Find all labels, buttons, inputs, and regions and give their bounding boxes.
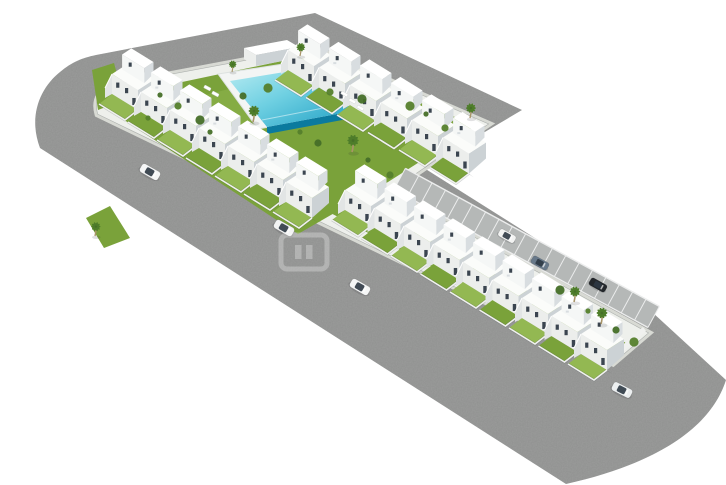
tree-shadow bbox=[92, 236, 101, 239]
window bbox=[506, 294, 509, 299]
window bbox=[125, 88, 128, 93]
palm-crown bbox=[232, 63, 234, 65]
window bbox=[292, 59, 295, 64]
shrub bbox=[145, 115, 150, 120]
window bbox=[556, 325, 559, 330]
palm-crown bbox=[95, 226, 97, 228]
shrub bbox=[357, 94, 366, 103]
window bbox=[416, 129, 419, 134]
roof-ac-unit bbox=[213, 123, 216, 125]
window bbox=[261, 173, 264, 178]
window bbox=[379, 217, 382, 222]
window bbox=[349, 199, 352, 204]
window bbox=[116, 83, 119, 88]
window bbox=[565, 330, 568, 335]
upper-window bbox=[216, 117, 219, 121]
shrub bbox=[207, 129, 212, 134]
palm-crown bbox=[300, 46, 302, 48]
window bbox=[232, 155, 235, 160]
door bbox=[432, 144, 435, 151]
window bbox=[358, 204, 361, 209]
window bbox=[497, 289, 500, 294]
scene-root bbox=[35, 13, 726, 484]
roof-ac-unit bbox=[389, 203, 392, 205]
roof-ac-unit bbox=[566, 311, 569, 313]
roof-ac-unit bbox=[271, 159, 274, 161]
upper-window bbox=[362, 179, 365, 183]
upper-window bbox=[568, 305, 571, 309]
watermark-bar bbox=[306, 245, 313, 259]
shrub bbox=[297, 129, 302, 134]
shrub bbox=[239, 92, 246, 99]
window bbox=[535, 312, 538, 317]
tree-shadow bbox=[348, 151, 359, 155]
upper-window bbox=[129, 63, 132, 67]
upper-window bbox=[305, 39, 308, 43]
shrub bbox=[585, 308, 590, 313]
shrub bbox=[441, 124, 448, 131]
window bbox=[354, 94, 357, 99]
window bbox=[408, 235, 411, 240]
window bbox=[270, 178, 273, 183]
shrub bbox=[314, 139, 321, 146]
window bbox=[301, 64, 304, 69]
shrub bbox=[423, 111, 428, 116]
window bbox=[299, 196, 302, 201]
window bbox=[323, 76, 326, 81]
tree-shadow bbox=[571, 302, 581, 306]
palm-crown bbox=[470, 107, 472, 109]
upper-window bbox=[480, 251, 483, 255]
palm-crown bbox=[601, 312, 604, 315]
upper-window bbox=[367, 74, 370, 78]
upper-window bbox=[187, 99, 190, 103]
upper-window bbox=[245, 135, 248, 139]
tree-shadow bbox=[250, 122, 260, 126]
window bbox=[332, 82, 335, 87]
upper-window bbox=[460, 126, 463, 130]
window bbox=[394, 117, 397, 122]
door bbox=[308, 74, 311, 81]
window bbox=[447, 146, 450, 151]
shrub bbox=[195, 115, 204, 124]
upper-window bbox=[336, 56, 339, 60]
roof-ac-unit bbox=[507, 275, 510, 277]
tree-shadow bbox=[230, 72, 237, 75]
door bbox=[370, 109, 373, 116]
upper-window bbox=[421, 215, 424, 219]
upper-window bbox=[158, 81, 161, 85]
window bbox=[183, 124, 186, 129]
window bbox=[241, 160, 244, 165]
tree-shadow bbox=[297, 56, 305, 59]
shrub bbox=[555, 285, 564, 294]
window bbox=[388, 222, 391, 227]
shrub bbox=[386, 171, 393, 178]
shrub bbox=[612, 326, 619, 333]
window bbox=[425, 134, 428, 139]
door bbox=[601, 358, 604, 365]
window bbox=[290, 191, 293, 196]
upper-window bbox=[450, 233, 453, 237]
upper-window bbox=[391, 197, 394, 201]
shrub bbox=[405, 101, 414, 110]
door bbox=[463, 161, 466, 168]
roof-ac-unit bbox=[155, 87, 158, 89]
palm-crown bbox=[352, 139, 355, 142]
palm-crown bbox=[253, 110, 256, 113]
shrub bbox=[174, 102, 181, 109]
window bbox=[174, 119, 177, 124]
screenshot-root bbox=[0, 0, 726, 485]
upper-window bbox=[429, 109, 432, 113]
site-plan-render bbox=[0, 0, 726, 485]
door bbox=[306, 206, 309, 213]
shrub bbox=[365, 157, 370, 162]
window bbox=[154, 106, 157, 111]
shrub bbox=[263, 83, 272, 92]
window bbox=[212, 142, 215, 147]
window bbox=[594, 348, 597, 353]
upper-window bbox=[303, 171, 306, 175]
window bbox=[467, 271, 470, 276]
shrub bbox=[157, 92, 162, 97]
tree-shadow bbox=[467, 118, 476, 122]
roof-ac-unit bbox=[448, 239, 451, 241]
window bbox=[526, 307, 529, 312]
door bbox=[401, 126, 404, 133]
window bbox=[438, 253, 441, 258]
upper-window bbox=[398, 91, 401, 95]
window bbox=[585, 343, 588, 348]
window bbox=[417, 240, 420, 245]
window bbox=[203, 137, 206, 142]
window bbox=[456, 152, 459, 157]
upper-window bbox=[274, 153, 277, 157]
palm-crown bbox=[574, 290, 576, 292]
window bbox=[385, 111, 388, 116]
shrub bbox=[629, 337, 638, 346]
shrub bbox=[326, 88, 333, 95]
window bbox=[447, 258, 450, 263]
roof-ac-unit bbox=[457, 132, 460, 134]
upper-window bbox=[539, 287, 542, 291]
tree-shadow bbox=[598, 324, 608, 328]
upper-window bbox=[509, 269, 512, 273]
window bbox=[145, 101, 148, 106]
window bbox=[476, 276, 479, 281]
roof-ac-unit bbox=[333, 62, 336, 64]
roof-ac-unit bbox=[395, 97, 398, 99]
watermark-bar bbox=[295, 245, 302, 259]
